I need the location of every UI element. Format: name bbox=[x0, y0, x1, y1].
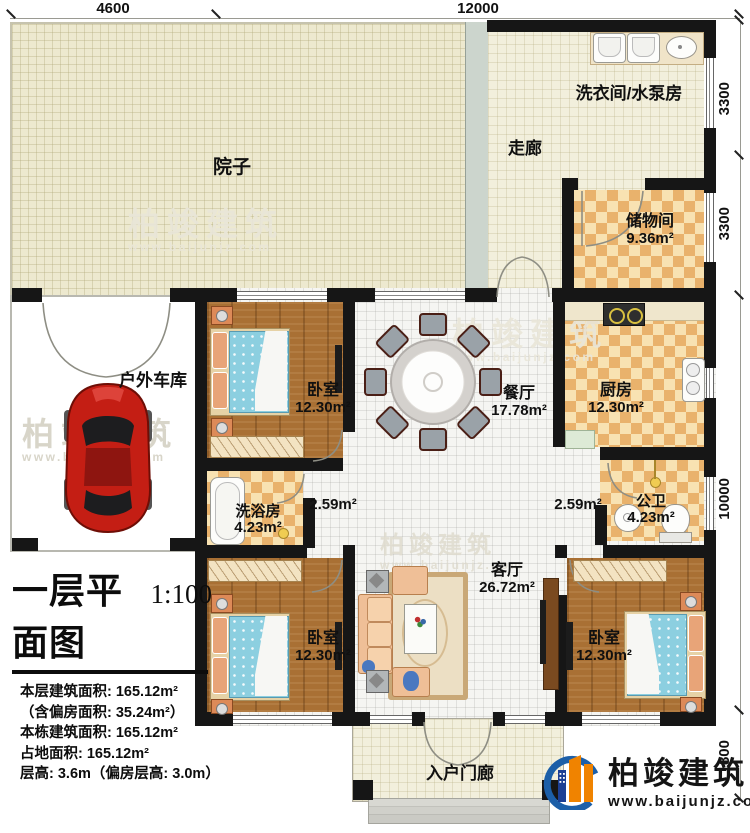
info-line: 占地面积: 165.12m² bbox=[20, 744, 212, 765]
toilet-tank bbox=[659, 532, 692, 543]
pillow bbox=[212, 657, 228, 694]
floor-plan: 柏竣建筑 www.baijunjz.com 柏竣建筑 www.baijunjz.… bbox=[0, 0, 750, 833]
bed-sheet bbox=[255, 616, 287, 696]
pillow bbox=[688, 655, 704, 692]
title-underline bbox=[12, 670, 208, 674]
armchair bbox=[392, 566, 428, 595]
kitchen-table bbox=[565, 430, 595, 449]
dim-top-1: 4600 bbox=[96, 0, 129, 17]
logo-text: 柏竣建筑 bbox=[608, 748, 750, 793]
nightstand bbox=[211, 594, 233, 613]
tv bbox=[566, 622, 573, 670]
info-line: 本栋建筑面积: 165.12m² bbox=[20, 723, 212, 744]
info-line: 层高: 3.6m（偏房层高: 3.0m） bbox=[20, 764, 212, 785]
page-title: 一层平面图 bbox=[12, 562, 140, 666]
info-line: 本层建筑面积: 165.12m² bbox=[20, 682, 212, 703]
wc-lamp-cord bbox=[654, 460, 656, 479]
kitchen-sink bbox=[682, 358, 705, 402]
washing-machine bbox=[627, 33, 660, 63]
nightstand bbox=[680, 592, 702, 611]
dining-table-icon bbox=[363, 312, 503, 452]
wardrobe bbox=[573, 560, 667, 582]
dim-right-3: 10000 bbox=[716, 478, 733, 520]
side-table bbox=[366, 670, 389, 693]
logo: 柏竣建筑 www.baijunjz.com bbox=[540, 748, 750, 810]
pillow bbox=[212, 617, 228, 654]
car-icon bbox=[62, 382, 154, 534]
nightstand bbox=[211, 306, 233, 325]
room-label-bedroom3: 卧室 12.30m² bbox=[576, 631, 632, 665]
dim-right-2: 3300 bbox=[716, 207, 733, 240]
nightstand bbox=[680, 697, 702, 712]
plan-scale: 1:100 bbox=[150, 579, 212, 610]
wardrobe bbox=[210, 436, 304, 458]
plan-info: 本层建筑面积: 165.12m² （含偏房面积: 35.24m²） 本栋建筑面积… bbox=[12, 682, 212, 785]
area-label-hall-left: 2.59m² bbox=[309, 497, 357, 513]
room-label-living: 客厅 26.72m² bbox=[479, 563, 535, 597]
tv bbox=[540, 600, 546, 664]
pillow bbox=[688, 615, 704, 652]
room-label-corridor: 走廊 bbox=[508, 140, 542, 158]
room-label-wc: 公卫 4.23m² bbox=[627, 494, 675, 526]
nightstand bbox=[211, 418, 233, 437]
room-label-bath: 洗浴房 4.23m² bbox=[234, 504, 282, 536]
room-label-dining: 餐厅 17.78m² bbox=[491, 386, 547, 420]
nightstand bbox=[211, 699, 233, 714]
title-block: 一层平面图 1:100 本层建筑面积: 165.12m² （含偏房面积: 35.… bbox=[12, 562, 212, 785]
room-label-storage: 储物间 9.36m² bbox=[626, 214, 674, 248]
room-label-laundry: 洗衣间/水泵房 bbox=[576, 85, 683, 103]
dim-right-1: 3300 bbox=[716, 82, 733, 115]
stove bbox=[603, 303, 645, 326]
wc-lamp bbox=[650, 477, 661, 488]
bed-sheet bbox=[255, 331, 287, 411]
coffee-table bbox=[404, 604, 437, 654]
wardrobe bbox=[208, 560, 302, 582]
dim-top-2: 12000 bbox=[457, 0, 499, 17]
pillow bbox=[212, 332, 228, 369]
area-label-hall-right: 2.59m² bbox=[554, 497, 602, 513]
pillow bbox=[212, 372, 228, 409]
armchair bbox=[392, 667, 430, 697]
side-table bbox=[366, 570, 389, 593]
room-label-porch: 入户门廊 bbox=[426, 765, 494, 783]
washing-machine bbox=[593, 33, 626, 63]
dimension-line-top bbox=[10, 18, 740, 19]
room-label-bedroom1: 卧室 12.30m² bbox=[295, 383, 351, 417]
room-label-garage: 户外车库 bbox=[119, 372, 187, 390]
room-label-kitchen: 厨房 12.30m² bbox=[588, 383, 644, 417]
room-label-bedroom2: 卧室 12.30m² bbox=[295, 631, 351, 665]
info-line: （含偏房面积: 35.24m²） bbox=[20, 703, 212, 724]
room-label-yard: 院子 bbox=[213, 158, 251, 178]
person-figure bbox=[403, 671, 419, 691]
logo-url: www.baijunjz.com bbox=[608, 793, 750, 810]
laundry-sink bbox=[666, 36, 697, 59]
dimension-line-right bbox=[740, 22, 741, 800]
logo-building-icon bbox=[540, 748, 602, 810]
